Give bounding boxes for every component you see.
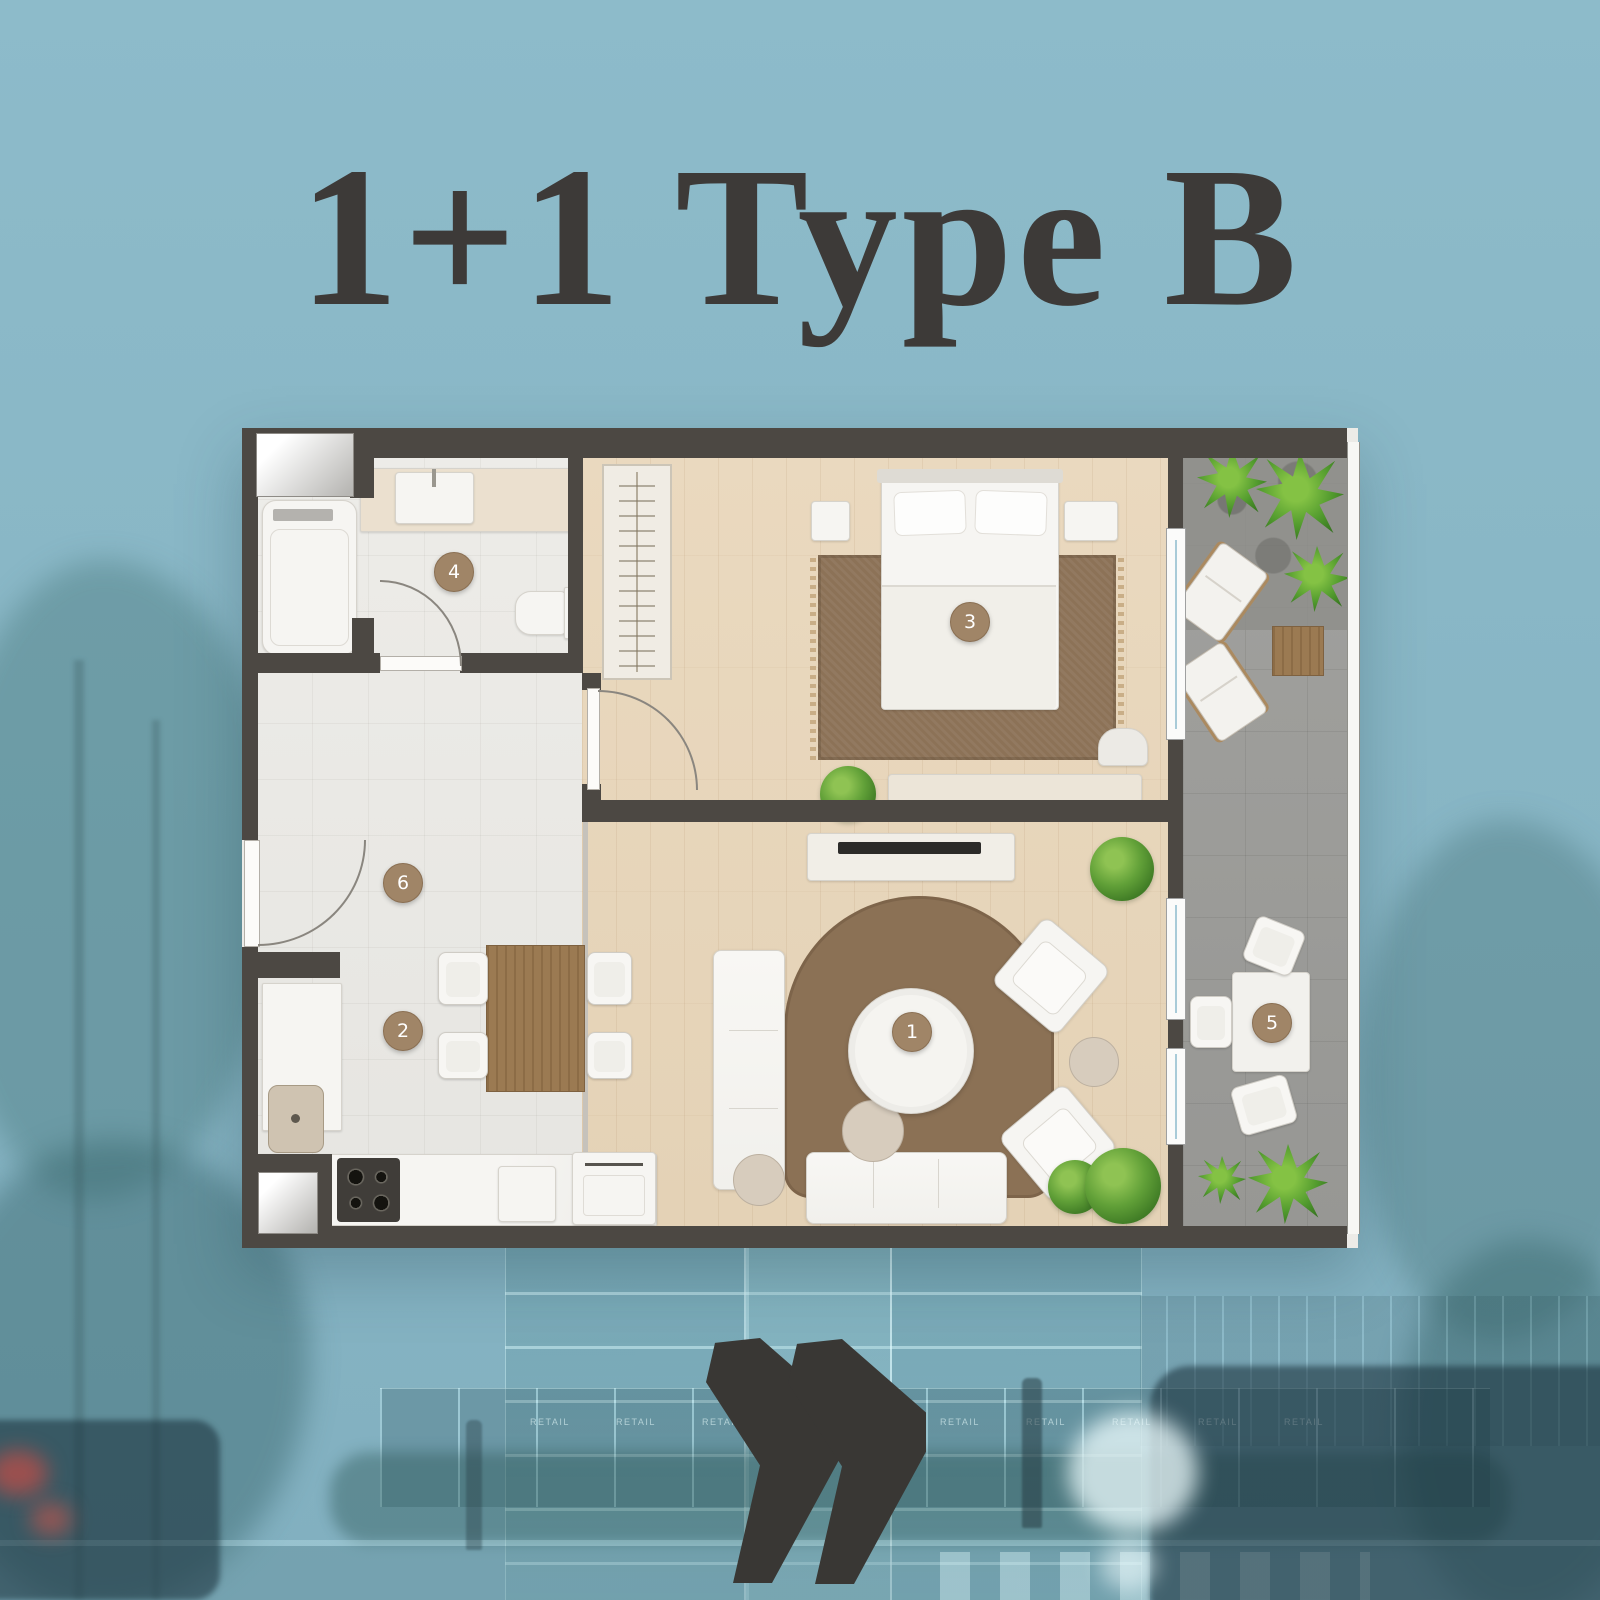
background-car-left: [0, 1420, 220, 1600]
wardrobe: [602, 464, 672, 680]
sofa-left: [713, 950, 785, 1190]
bathroom-sink: [395, 472, 474, 524]
wall-balcony-side: [1168, 444, 1183, 528]
room-badge-living-room: 1: [892, 1012, 932, 1052]
retail-sign: RETAIL: [1026, 1417, 1066, 1427]
background-tree-left-top: [0, 560, 280, 1200]
bed-pillow: [893, 490, 966, 536]
dining-chair: [438, 1032, 488, 1079]
floor-stool: [733, 1154, 785, 1206]
wall-kitchen-stub: [242, 952, 340, 978]
background-side-building: [1140, 1296, 1600, 1446]
dining-chair: [587, 1032, 632, 1079]
background-storefront: RETAIL RETAIL RETAIL RETAIL RETAIL RETAI…: [380, 1388, 1490, 1507]
background-pedestrian: [1022, 1378, 1042, 1528]
page-title: 1+1 Type B: [0, 138, 1600, 338]
background-car-right: [1150, 1366, 1600, 1600]
side-table: [1069, 1037, 1119, 1087]
car-taillight-glow: [0, 1450, 48, 1496]
stove-cooktop: [337, 1158, 400, 1222]
bathtub: [262, 500, 357, 655]
faucet-icon: [585, 1163, 643, 1166]
poster-canvas: RETAIL RETAIL RETAIL RETAIL RETAIL RETAI…: [0, 0, 1600, 1600]
background-tree-trunk: [152, 720, 160, 1600]
retail-sign: RETAIL: [1284, 1417, 1324, 1427]
dining-chair: [438, 952, 488, 1005]
balcony-chair: [1190, 996, 1232, 1048]
plant: [1090, 837, 1154, 901]
wall-bath-bottom-a: [242, 653, 380, 673]
faucet-icon: [432, 469, 436, 487]
background-tree-right-bottom: [1400, 1240, 1600, 1600]
room-badge-balcony: 5: [1252, 1003, 1292, 1043]
kitchen-basin: [268, 1085, 324, 1153]
wall-bottom: [242, 1226, 1347, 1248]
car-headlight-glow: [1100, 1540, 1156, 1590]
room-badge-bathroom: 4: [434, 552, 474, 592]
bed-headboard: [877, 469, 1063, 483]
retail-sign: RETAIL: [1198, 1417, 1238, 1427]
room-badge-bedroom: 3: [950, 602, 990, 642]
sofa-bottom: [806, 1152, 1007, 1224]
background-tree-trunk: [74, 660, 84, 1600]
background-pedestrian: [466, 1420, 482, 1550]
nightstand: [1064, 501, 1118, 541]
wall-balcony-side: [1168, 1018, 1183, 1048]
corner-niche: [258, 1172, 318, 1234]
living-window: [1166, 1048, 1186, 1145]
retail-sign: RETAIL: [940, 1417, 980, 1427]
tv-console: [807, 833, 1015, 881]
living-window: [1166, 898, 1186, 1020]
dishwasher: [498, 1166, 556, 1222]
bedroom-dresser: [888, 774, 1142, 803]
bathtub-basin: [270, 529, 349, 646]
balcony-side-table: [1272, 626, 1324, 676]
dining-chair: [587, 952, 632, 1005]
bathtub-ledge: [273, 509, 333, 521]
shaft-top-left: [256, 433, 354, 497]
retail-sign: RETAIL: [1112, 1417, 1152, 1427]
bed-pillow: [974, 490, 1047, 536]
brand-logo: [694, 1338, 926, 1584]
room-badge-entry-hall: 6: [383, 863, 423, 903]
basin-drain: [291, 1114, 300, 1123]
retail-sign: RETAIL: [616, 1417, 656, 1427]
bedroom-chair: [1098, 728, 1148, 766]
tv-screen: [838, 842, 981, 854]
sink-basin-line: [583, 1175, 645, 1216]
background-crosswalk: [940, 1552, 1370, 1600]
wall-bedroom-living: [588, 800, 1168, 822]
kitchen-sink: [572, 1152, 656, 1225]
wall-bath-bottom-b: [460, 653, 583, 673]
floor-plan: 1 2 3 4 5 6: [242, 428, 1358, 1248]
wall-bath-right: [568, 440, 583, 673]
dining-table: [486, 945, 585, 1092]
retail-sign: RETAIL: [530, 1417, 570, 1427]
car-headlight-glow: [1068, 1412, 1198, 1532]
nightstand: [811, 501, 850, 541]
plant: [1085, 1148, 1161, 1224]
toilet: [515, 591, 567, 635]
bed-double: [881, 476, 1059, 710]
wall-balcony-side: [1168, 738, 1183, 898]
room-badge-kitchen: 2: [383, 1011, 423, 1051]
balcony-railing: [1347, 442, 1360, 1234]
wall-balcony-side: [1168, 1143, 1183, 1228]
bedroom-window: [1166, 528, 1186, 740]
background-tree-right-top: [1360, 820, 1600, 1340]
car-taillight-glow: [30, 1502, 72, 1536]
